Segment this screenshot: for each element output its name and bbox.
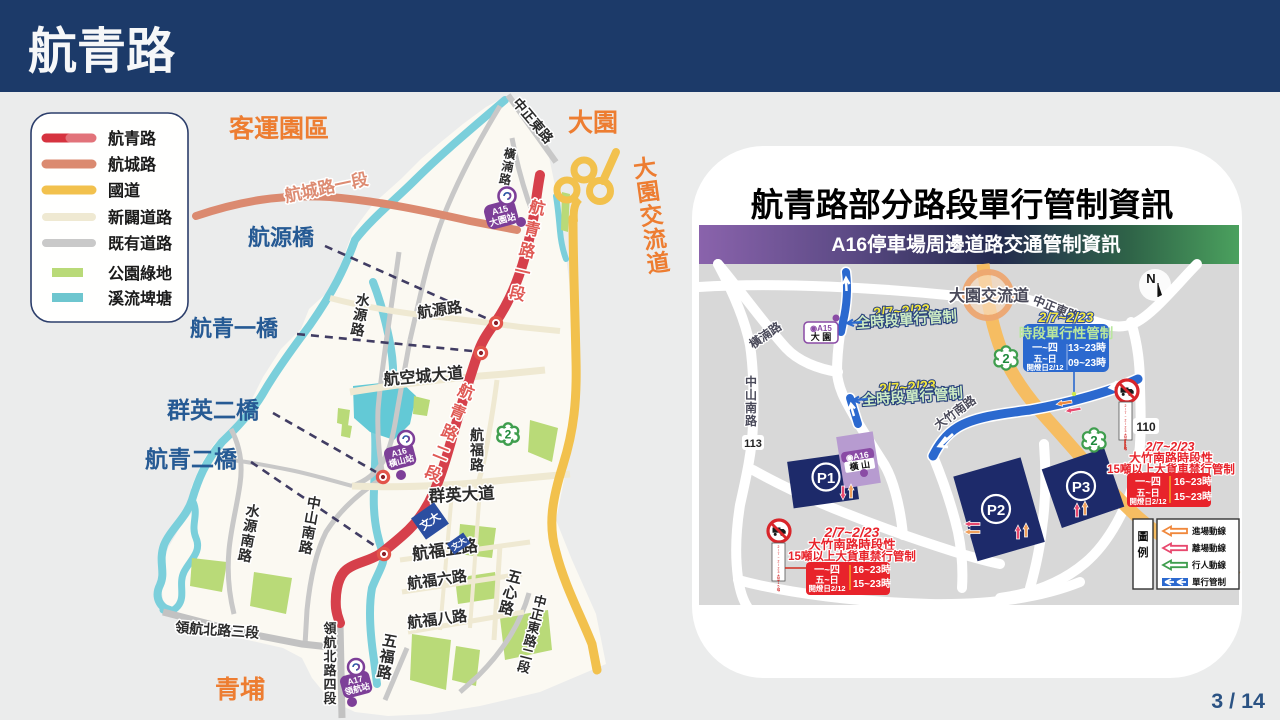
- svg-text:一~四: 一~四: [1032, 342, 1058, 354]
- svg-text:15~23時: 15~23時: [853, 577, 891, 590]
- svg-text:2: 2: [1002, 351, 1009, 366]
- svg-text:進場動線: 進場動線: [1192, 526, 1227, 536]
- svg-text:一~四: 一~四: [1135, 476, 1161, 488]
- svg-text:國道: 國道: [108, 181, 140, 200]
- svg-text:既有道路: 既有道路: [108, 234, 173, 253]
- svg-text:2/7~2/23: 2/7~2/23: [1038, 309, 1094, 325]
- svg-text:航青路部分路段單行管制資訊: 航青路部分路段單行管制資訊: [751, 186, 1174, 223]
- svg-text:110: 110: [1136, 420, 1156, 434]
- svg-text:P2: P2: [987, 502, 1005, 519]
- svg-text:開燈日2/12: 開燈日2/12: [1129, 496, 1166, 506]
- svg-text:時段單行性管制: 時段單行性管制: [1019, 325, 1114, 341]
- svg-text:3 / 14: 3 / 14: [1211, 689, 1265, 713]
- svg-text:溪流埤塘: 溪流埤塘: [108, 289, 172, 308]
- svg-text:領航北路四段: 領航北路四段: [323, 621, 337, 706]
- svg-text:開燈日2/12: 開燈日2/12: [808, 583, 845, 593]
- svg-text:2: 2: [1090, 433, 1097, 448]
- svg-text:航青路: 航青路: [108, 129, 157, 148]
- svg-text:客運園區: 客運園區: [229, 114, 329, 143]
- svg-text:大園交流道: 大園交流道: [949, 286, 1029, 305]
- svg-text:航源橋: 航源橋: [248, 225, 315, 250]
- svg-text:新闢道路: 新闢道路: [108, 208, 173, 227]
- svg-text:青埔: 青埔: [215, 675, 265, 704]
- svg-text:13~23時: 13~23時: [1068, 341, 1106, 354]
- svg-text:大 園: 大 園: [811, 331, 832, 342]
- svg-text:離場動線: 離場動線: [1192, 543, 1227, 553]
- svg-text:中山南路: 中山南路: [745, 374, 758, 428]
- svg-text:航青一橋: 航青一橋: [190, 316, 279, 341]
- svg-text:航城路: 航城路: [108, 155, 157, 174]
- svg-text:A16停車場周邊道路交通管制資訊: A16停車場周邊道路交通管制資訊: [831, 233, 1121, 256]
- svg-text:大竹南路時段性: 大竹南路時段性: [808, 537, 896, 552]
- svg-text:P3: P3: [1072, 479, 1090, 496]
- svg-text:航福路: 航福路: [469, 427, 485, 473]
- svg-text:113: 113: [744, 438, 762, 450]
- svg-text:09~23時: 09~23時: [1068, 356, 1106, 369]
- svg-text:航青二橋: 航青二橋: [145, 446, 238, 472]
- svg-text:開燈日2/12: 開燈日2/12: [1026, 362, 1063, 372]
- svg-text:大竹南路時段性: 大竹南路時段性: [1129, 450, 1213, 465]
- svg-text:15~23時: 15~23時: [1174, 490, 1212, 503]
- svg-text:航青路: 航青路: [28, 25, 176, 79]
- svg-text:公園綠地: 公園綠地: [108, 264, 172, 283]
- svg-text:N: N: [1146, 271, 1155, 286]
- svg-text:群英二橋: 群英二橋: [166, 397, 260, 423]
- svg-text:2: 2: [505, 428, 512, 442]
- svg-text:行人動線: 行人動線: [1191, 560, 1227, 570]
- svg-text:P1: P1: [817, 470, 835, 487]
- svg-text:15噸以上大貨車禁行管制: 15噸以上大貨車禁行管制: [788, 549, 916, 563]
- svg-text:大園: 大園: [568, 109, 618, 137]
- svg-text:16~23時: 16~23時: [853, 563, 891, 576]
- svg-text:16~23時: 16~23時: [1174, 475, 1212, 488]
- svg-text:單行管制: 單行管制: [1192, 577, 1227, 587]
